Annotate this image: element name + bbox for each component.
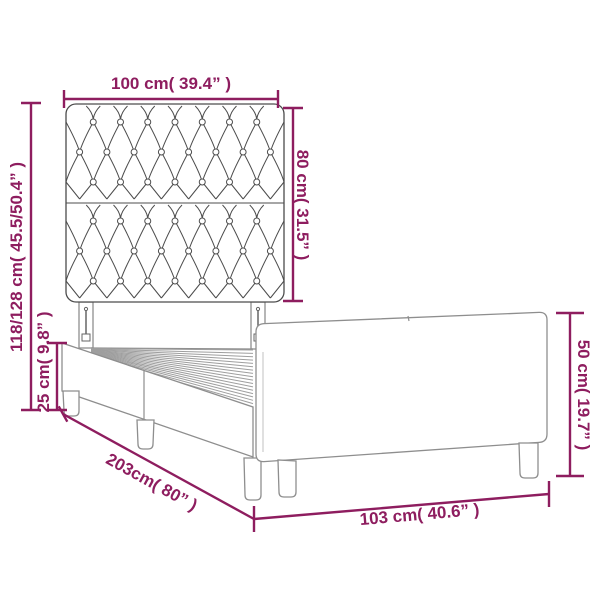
- dim-headboard-width-label: 100 cm( 39.4” ): [111, 74, 231, 93]
- dim-headboard-height: 80 cm( 31.5” ): [283, 108, 312, 301]
- leg-middle: [137, 420, 154, 449]
- headboard: [66, 104, 284, 302]
- headboard-legs: [79, 302, 265, 349]
- dim-footboard-width-label: 103 cm( 40.6” ): [359, 500, 480, 529]
- dim-footboard-height: 50 cm( 19.7” ): [556, 313, 593, 476]
- dim-footboard-width: 103 cm( 40.6” ): [254, 481, 549, 529]
- footboard: [256, 312, 547, 497]
- footboard-panel: [256, 312, 547, 461]
- dim-headboard-width: 100 cm( 39.4” ): [64, 74, 278, 108]
- diagram-canvas: 100 cm( 39.4” ) 80 cm( 31.5” ) 118/128 c…: [0, 0, 600, 600]
- leg-front-left: [63, 391, 79, 416]
- dim-headboard-height-label: 80 cm( 31.5” ): [293, 150, 312, 261]
- dim-total-height-label: 118/128 cm( 45.5/50.4” ): [7, 162, 26, 352]
- side-rail: [62, 343, 253, 457]
- dim-footboard-height-label: 50 cm( 19.7” ): [574, 340, 593, 451]
- footboard-leg-left: [278, 460, 296, 497]
- footboard-leg-right: [519, 443, 538, 478]
- dim-base-height-label: 25 cm( 9.8” ): [34, 311, 53, 412]
- bed-frame-dimension-diagram: 100 cm( 39.4” ) 80 cm( 31.5” ) 118/128 c…: [0, 0, 600, 600]
- leg-rail-foot: [244, 458, 261, 500]
